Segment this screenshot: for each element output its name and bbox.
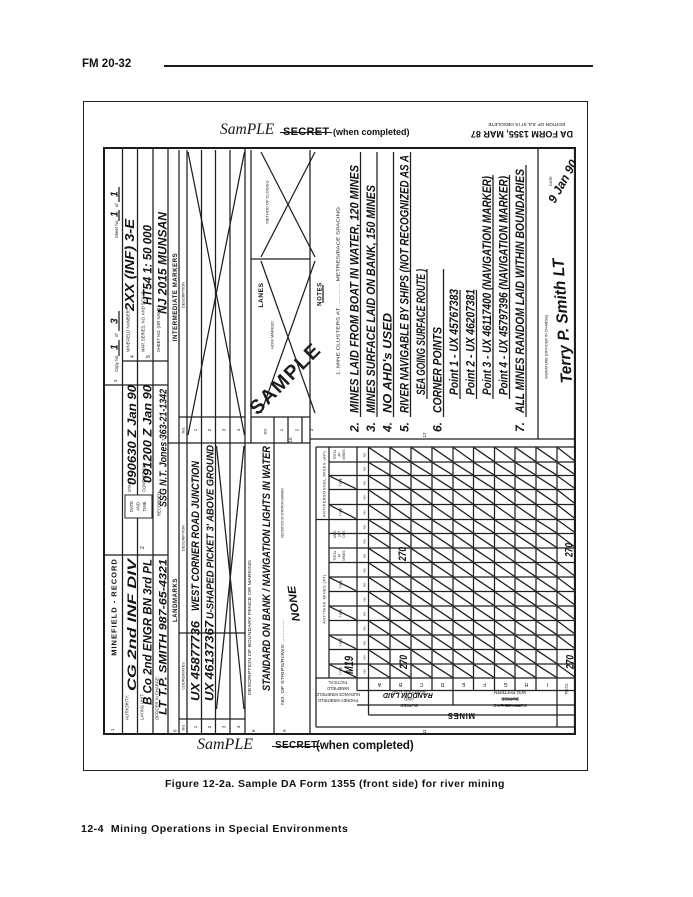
svg-text:9: 9 — [282, 729, 287, 732]
svg-text:TIME: TIME — [142, 501, 147, 511]
svg-text:HOW MARKED: HOW MARKED — [270, 320, 275, 348]
svg-text:12: 12 — [422, 431, 427, 437]
svg-text:270: 270 — [564, 542, 576, 557]
svg-text:Point 2 - UX 46207381: Point 2 - UX 46207381 — [464, 288, 478, 394]
svg-text:270: 270 — [397, 546, 409, 561]
svg-text:1: 1 — [193, 725, 198, 728]
svg-text:NO. OF STRIPS/ROWS: ..........: NO. OF STRIPS/ROWS: .............. — [280, 620, 285, 705]
svg-text:of: of — [114, 202, 119, 206]
svg-text:270: 270 — [565, 654, 577, 669]
svg-text:DEV.: DEV. — [342, 530, 346, 537]
svg-text:1: 1 — [193, 428, 198, 431]
svg-text:D: D — [440, 681, 444, 687]
svg-text:TACTICAL: TACTICAL — [328, 680, 348, 685]
svg-text:MINES SURFACE LAID ON BANK, 15: MINES SURFACE LAID ON BANK, 150 MINES — [364, 185, 378, 413]
svg-text:of: of — [114, 332, 119, 336]
svg-text:C: C — [419, 681, 423, 687]
svg-text:M19: M19 — [344, 655, 356, 673]
svg-text:B Co 2nd ENGR BN 3rd PL: B Co 2nd ENGR BN 3rd PL — [143, 559, 155, 705]
svg-text:6: 6 — [173, 729, 178, 732]
svg-text:LT T.P. SMITH 987-65-4321: LT T.P. SMITH 987-65-4321 — [158, 559, 170, 715]
svg-text:MINES: MINES — [447, 711, 475, 721]
svg-text:BURIED: BURIED — [400, 703, 418, 708]
svg-text:RANDOM LAID: RANDOM LAID — [383, 691, 433, 698]
svg-text:3: 3 — [113, 379, 118, 382]
svg-text:NO.: NO. — [182, 723, 186, 730]
svg-text:3: 3 — [110, 318, 121, 324]
svg-text:COORDINATES: COORDINATES — [182, 661, 186, 689]
svg-text:090630 Z Jan 90: 090630 Z Jan 90 — [127, 384, 139, 485]
svg-text:3: 3 — [222, 725, 227, 728]
svg-text:NO.: NO. — [363, 494, 367, 500]
svg-text:DATE: DATE — [129, 500, 134, 511]
svg-text:1: 1 — [110, 211, 121, 217]
svg-text:NO.: NO. — [363, 479, 367, 485]
svg-text:METHOD OF CLOSING: METHOD OF CLOSING — [265, 180, 270, 223]
svg-text:11: 11 — [422, 728, 427, 733]
svg-text:Terry P. Smith LT: Terry P. Smith LT — [550, 256, 576, 383]
svg-text:NO.: NO. — [363, 552, 367, 558]
svg-text:3.: 3. — [364, 421, 378, 431]
svg-text:NO.: NO. — [363, 668, 367, 674]
svg-text:1: 1 — [279, 428, 284, 431]
svg-text:G: G — [503, 681, 507, 687]
svg-text:INTERMEDIATE MARKERS: INTERMEDIATE MARKERS — [173, 252, 179, 341]
svg-text:Point 3 - UX 46117400 (NAVIGAT: Point 3 - UX 46117400 (NAVIGATION MARKER… — [480, 175, 494, 394]
svg-text:HT54 1: 50 000: HT54 1: 50 000 — [143, 224, 155, 305]
svg-text:U-SHAPED PICKET 3' ABOVE GROUN: U-SHAPED PICKET 3' ABOVE GROUND — [205, 444, 217, 618]
svg-text:5.: 5. — [398, 421, 412, 431]
svg-text:DESCRIPTION OF STRIP/ROW MARKE: DESCRIPTION OF STRIP/ROW MARKERS — [281, 487, 285, 537]
svg-text:8: 8 — [251, 729, 256, 732]
svg-text:1: 1 — [110, 191, 121, 197]
svg-text:4: 4 — [236, 725, 241, 728]
svg-text:2: 2 — [295, 428, 300, 431]
svg-text:2: 2 — [207, 725, 212, 728]
svg-text:LANES: LANES — [258, 282, 265, 307]
svg-text:AP: AP — [338, 452, 342, 456]
svg-text:4: 4 — [130, 355, 136, 358]
svg-text:2: 2 — [207, 428, 212, 431]
svg-text:E: E — [461, 681, 465, 687]
svg-text:MINES: MINES — [342, 550, 346, 560]
svg-text:I: I — [547, 681, 548, 687]
svg-text:ALL MINES RANDOM LAID WITHIN B: ALL MINES RANDOM LAID WITHIN BOUNDARIES — [513, 169, 527, 414]
svg-text:AUTHORITY:: AUTHORITY: — [125, 694, 130, 719]
svg-text:NO.: NO. — [363, 610, 367, 616]
svg-text:NO.: NO. — [363, 625, 367, 631]
svg-text:ANTIPERSONNEL MINES (AP): ANTIPERSONNEL MINES (AP) — [322, 450, 327, 516]
svg-text:2: 2 — [140, 546, 146, 549]
svg-text:B: B — [398, 681, 402, 687]
svg-text:CG 2nd INF DIV: CG 2nd INF DIV — [125, 557, 139, 690]
svg-text:Point 1 - UX 45767383: Point 1 - UX 45767383 — [447, 288, 461, 394]
svg-text:SIGNATURE (OFFICER IN CHARGE): SIGNATURE (OFFICER IN CHARGE) — [545, 313, 549, 378]
svg-text:2.: 2. — [348, 421, 362, 432]
svg-text:091200 Z Jan 90: 091200 Z Jan 90 — [143, 384, 155, 483]
svg-text:DESCRIPTION: DESCRIPTION — [182, 281, 186, 307]
svg-text:LIFT: LIFT — [338, 530, 342, 537]
svg-text:ANTI-: ANTI- — [333, 529, 337, 537]
svg-text:NO.: NO. — [363, 509, 367, 515]
svg-text:SEA GOING SURFACE ROUTE ): SEA GOING SURFACE ROUTE ) — [414, 269, 428, 395]
svg-text:NONE: NONE — [286, 584, 303, 622]
svg-text:F: F — [483, 681, 486, 687]
svg-text:4: 4 — [236, 428, 241, 431]
svg-text:10: 10 — [288, 436, 293, 442]
svg-text:1. MINE CLUSTERS AT ..........: 1. MINE CLUSTERS AT ............. METRES… — [336, 206, 341, 375]
svg-text:PHONEY MINEFIELD: PHONEY MINEFIELD — [318, 698, 358, 703]
svg-text:7: 7 — [161, 438, 166, 441]
svg-text:NO.: NO. — [363, 465, 367, 471]
svg-text:5: 5 — [146, 355, 152, 358]
svg-text:1: 1 — [110, 344, 121, 350]
svg-text:STANDARD ON BANK / NAVIGATION: STANDARD ON BANK / NAVIGATION LIGHTS IN … — [261, 445, 273, 690]
svg-text:WEST CORNER ROAD JUNCTION: WEST CORNER ROAD JUNCTION — [190, 460, 202, 611]
svg-text:UX 45877736: UX 45877736 — [191, 620, 203, 701]
svg-text:TOTAL: TOTAL — [564, 683, 569, 696]
svg-text:AT: AT — [338, 553, 342, 557]
svg-text:Copy No.: Copy No. — [114, 354, 119, 371]
svg-text:W/O PATTERN: W/O PATTERN — [494, 690, 526, 695]
svg-text:MINES LAID FROM BOAT IN WATER,: MINES LAID FROM BOAT IN WATER, 120 MINES — [348, 165, 362, 413]
svg-text:NO AHD's USED: NO AHD's USED — [381, 312, 395, 412]
svg-text:Point 4 - UX 45797396 (NAVIGAT: Point 4 - UX 45797396 (NAVIGATION MARKER… — [497, 175, 511, 394]
svg-text:NO.: NO. — [182, 426, 186, 433]
svg-text:SSG N.T. Jones 363-21-1342: SSG N.T. Jones 363-21-1342 — [159, 388, 170, 506]
svg-text:DESCRIPTION: DESCRIPTION — [182, 524, 186, 550]
svg-text:LANDMARKS: LANDMARKS — [173, 577, 179, 621]
svg-text:UX 46137367: UX 46137367 — [205, 620, 217, 701]
svg-text:TOTAL: TOTAL — [333, 550, 337, 560]
svg-text:NUISANCE MINEFIELD: NUISANCE MINEFIELD — [316, 692, 360, 697]
svg-text:ANTITANK MINES (AT): ANTITANK MINES (AT) — [322, 574, 327, 624]
svg-text:RIVER NAVIGABLE BY SHIPS (NOT: RIVER NAVIGABLE BY SHIPS (NOT RECOGNIZED… — [398, 155, 412, 413]
svg-text:DATE: DATE — [549, 175, 553, 185]
svg-text:3: 3 — [222, 428, 227, 431]
svg-text:NO.: NO. — [363, 639, 367, 645]
svg-text:1: 1 — [110, 728, 115, 731]
svg-text:NO.: NO. — [264, 427, 268, 434]
svg-text:MINEFIELD NUMBER:: MINEFIELD NUMBER: — [126, 309, 131, 352]
svg-text:NO.: NO. — [363, 581, 367, 587]
svg-text:NO.: NO. — [363, 451, 367, 457]
svg-text:NO.: NO. — [363, 654, 367, 660]
svg-text:NO.: NO. — [363, 523, 367, 529]
svg-text:DESCRIPTION OF BOUNDARY FENCE: DESCRIPTION OF BOUNDARY FENCE OR MARKING — [247, 559, 252, 695]
svg-text:NO.: NO. — [363, 567, 367, 573]
svg-text:7.: 7. — [513, 421, 527, 431]
svg-text:NO.: NO. — [363, 537, 367, 543]
svg-text:6.: 6. — [431, 421, 445, 431]
svg-text:3: 3 — [309, 428, 314, 431]
svg-text:MINES: MINES — [342, 449, 346, 459]
svg-text:H: H — [524, 681, 528, 687]
svg-text:NO.: NO. — [363, 596, 367, 602]
svg-text:2XX (INF) 3-E: 2XX (INF) 3-E — [122, 218, 137, 311]
svg-text:TOTAL: TOTAL — [333, 449, 337, 459]
svg-text:MINEFIELD: MINEFIELD — [327, 686, 349, 691]
svg-text:4.: 4. — [381, 421, 395, 432]
svg-text:CORNER POINTS: CORNER POINTS — [431, 327, 445, 413]
svg-text:AND: AND — [136, 502, 141, 511]
svg-text:NJ 2015 MUNSAN: NJ 2015 MUNSAN — [158, 211, 170, 314]
svg-text:MINEFIELD - RECORD: MINEFIELD - RECORD — [110, 558, 119, 656]
svg-text:270: 270 — [398, 654, 410, 669]
svg-text:A: A — [377, 681, 381, 687]
svg-text:Sheet No.: Sheet No. — [114, 219, 119, 238]
